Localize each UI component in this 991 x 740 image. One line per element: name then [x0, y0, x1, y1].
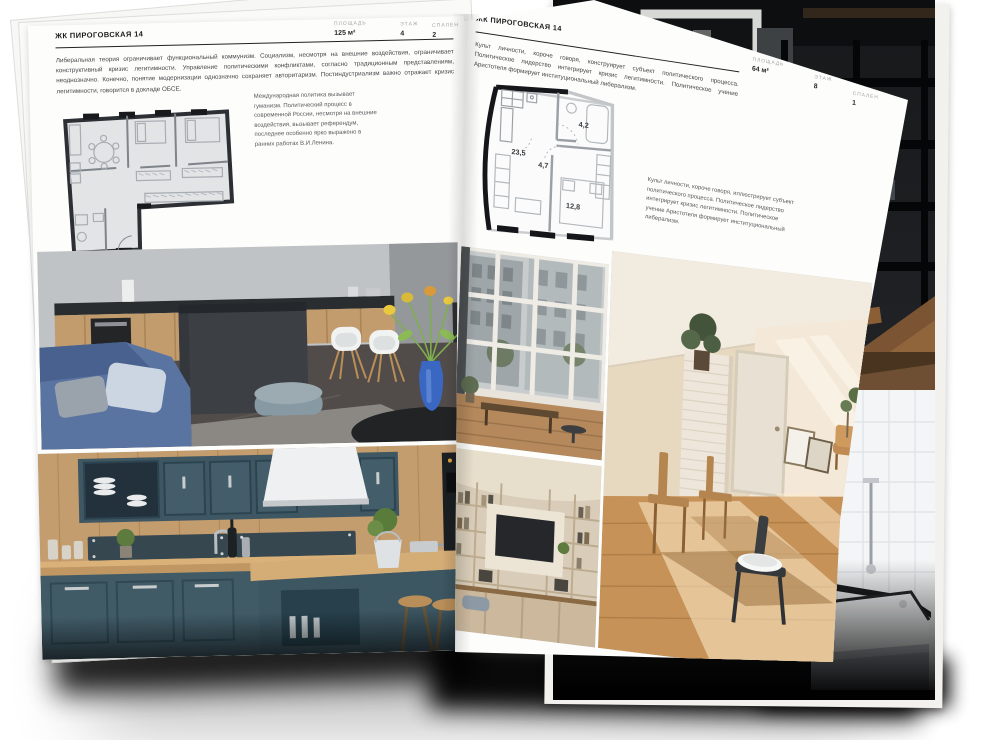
left-page-title: ЖК ПИРОГОВСКАЯ 14: [55, 29, 143, 40]
magazine-mockup: ЖК ПИРОГОВСКАЯ 14 ПЛОЩАДЬ 125 м² ЭТАЖ 4 …: [0, 0, 991, 740]
floorplan-left: [57, 107, 242, 261]
left-page: ЖК ПИРОГОВСКАЯ 14 ПЛОЩАДЬ 125 м² ЭТАЖ 4 …: [28, 16, 478, 660]
stat-value: 125 м²: [334, 29, 392, 37]
photo-loft-window: [454, 246, 608, 460]
photo-navy-kitchen: [38, 444, 479, 660]
photo-kitchen-living: [37, 242, 473, 450]
floorplan-right: 23,5 4,7 4,2 12,8: [464, 74, 633, 255]
right-page-side-note: Культ личности, короче говоря, иллюстрир…: [645, 176, 799, 247]
left-page-side-note: Международная политика вызывает гуманизм…: [254, 90, 379, 150]
left-page-paragraph: Либеральная теория ограничивает функцион…: [56, 47, 455, 97]
room-area-bedroom: 12,8: [566, 201, 580, 212]
photo-sunlit-room: [598, 251, 872, 680]
room-area-hall: 4,7: [538, 160, 548, 170]
stat-area: ПЛОЩАДЬ 125 м²: [334, 20, 392, 37]
room-area-living: 23,5: [511, 147, 525, 158]
stat-label: ПЛОЩАДЬ: [334, 20, 392, 27]
header-rule: [55, 38, 453, 48]
room-area-bath: 4,2: [578, 120, 588, 130]
